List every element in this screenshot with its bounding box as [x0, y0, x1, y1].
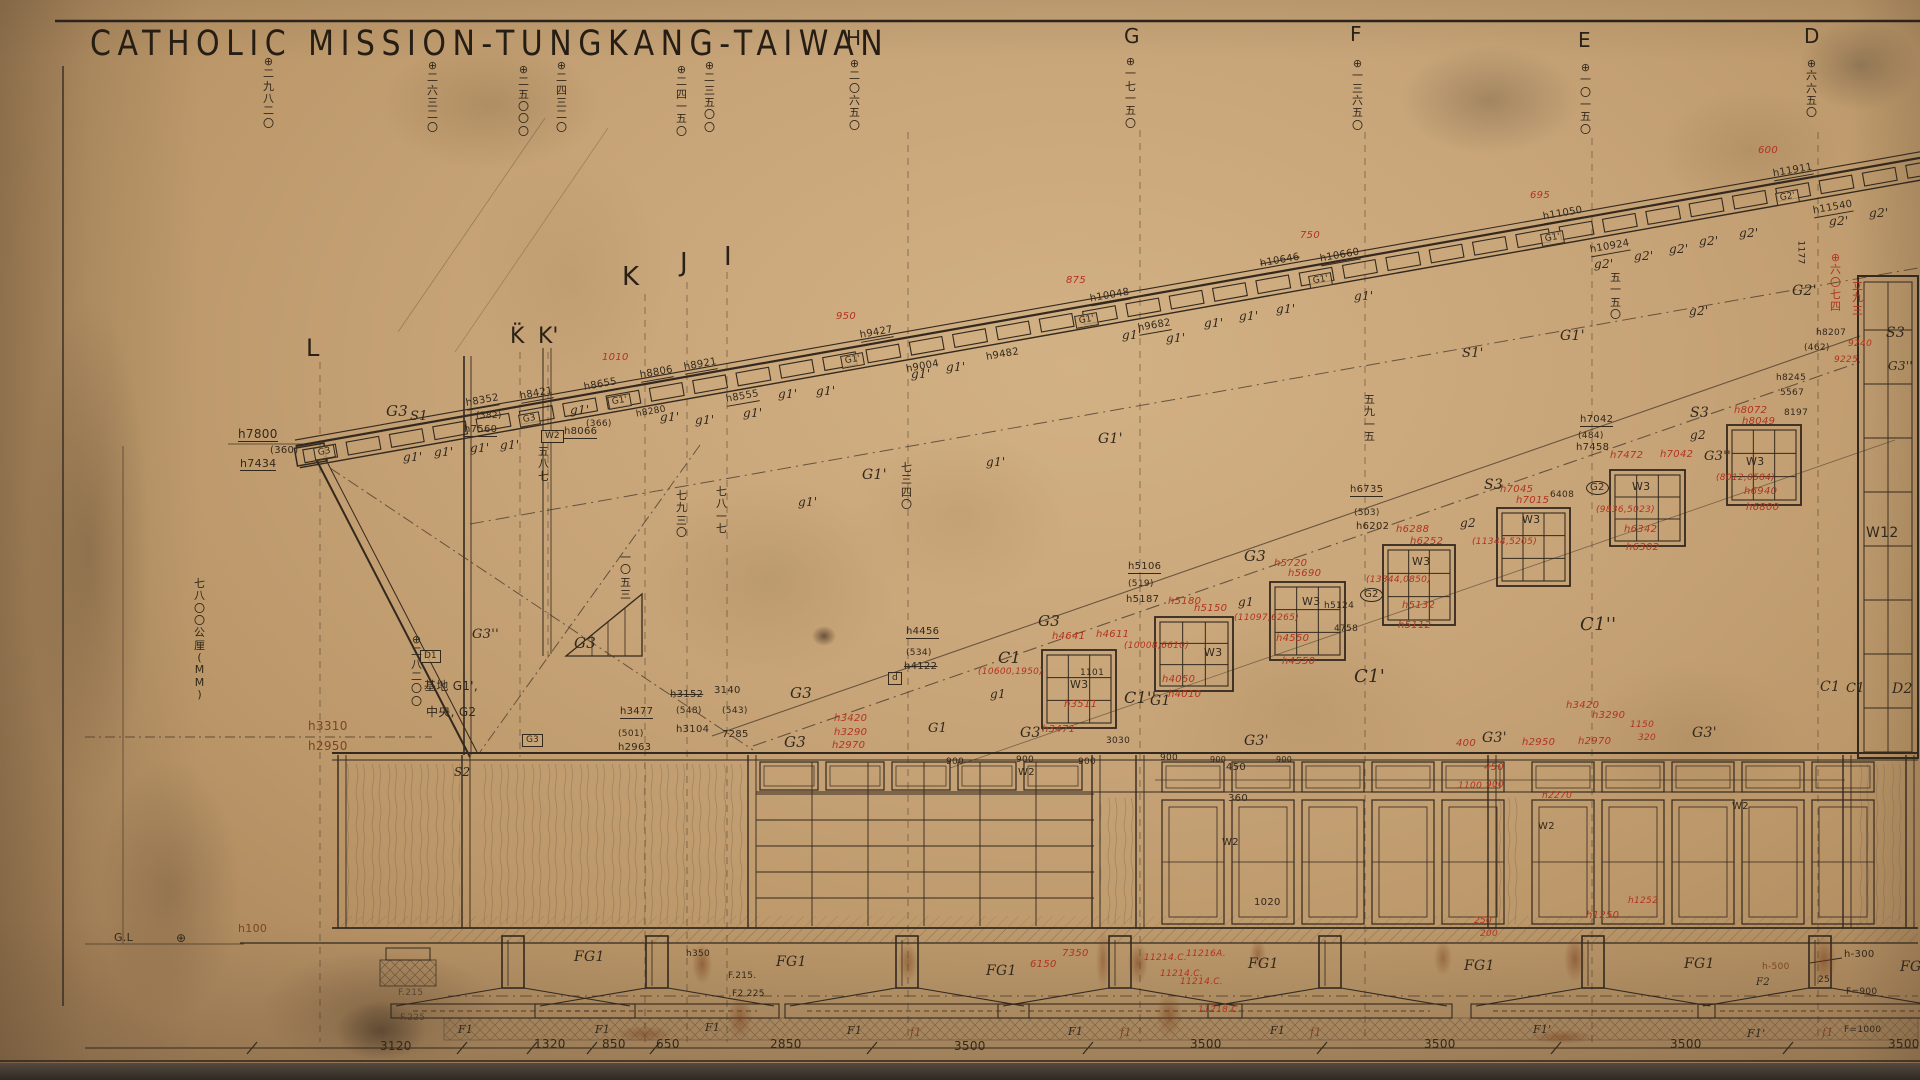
annotation: h8245: [1776, 374, 1806, 383]
annotation: 900: [1016, 756, 1034, 765]
boxed-label: G1': [607, 393, 632, 410]
annotation: C1'': [1580, 616, 1616, 634]
annotation: h5150: [1194, 604, 1227, 614]
annotation: D2: [1892, 682, 1913, 696]
annotation: h8555: [725, 389, 760, 407]
annotation: (548): [676, 707, 702, 716]
annotation: h8655: [583, 377, 618, 395]
annotation: F2 225: [732, 990, 765, 999]
annotation: F.225: [400, 1014, 425, 1023]
annotation: FG1: [776, 955, 807, 969]
annotation: h8352: [465, 393, 500, 411]
annotation: g2': [1699, 235, 1719, 247]
annotation: 3500: [1888, 1038, 1920, 1050]
annotation: 9225: [1834, 356, 1858, 365]
grid-letter: H: [846, 26, 861, 50]
annotation: (503): [1354, 509, 1380, 518]
annotation: F1: [595, 1024, 610, 1035]
annotation: 3500: [1424, 1038, 1456, 1050]
dimension-stack: ⊕二九八二〇: [263, 56, 274, 130]
annotation: G.L: [114, 932, 133, 943]
annotation: 750: [1300, 231, 1320, 241]
annotation: h3104: [676, 725, 709, 735]
annotation: 320: [1638, 734, 1656, 743]
boxed-label: W2: [541, 430, 564, 443]
annotation: 6408: [1550, 491, 1574, 500]
annotation: 3030: [1106, 737, 1130, 746]
dimension-stack: 七三四〇: [901, 462, 912, 511]
dimension-stack: 一〇五三: [620, 552, 631, 601]
annotation: h8049: [1742, 417, 1775, 427]
annotation: 1010: [602, 353, 629, 363]
annotation: g2': [1829, 215, 1849, 227]
annotation: (8012,0584): [1716, 474, 1775, 483]
boxed-label: G1': [1540, 230, 1565, 247]
annotation: h6252: [1410, 537, 1443, 547]
boxed-label: G3: [522, 734, 543, 747]
grid-letter: K': [538, 324, 558, 349]
boxed-label: G1': [1308, 272, 1333, 289]
annotation: 中央, G2: [426, 706, 476, 718]
annotation: h8066: [564, 427, 597, 439]
dimension-stack: 七九三〇: [676, 490, 687, 539]
annotation: f1: [1120, 1027, 1132, 1038]
annotation: F=1000: [1844, 1026, 1881, 1035]
annotation: h3152: [670, 690, 703, 700]
annotation: (11344,5205): [1472, 538, 1537, 547]
annotation: W3: [1302, 596, 1320, 607]
annotation: G2': [1792, 284, 1817, 298]
annotation: 基地 G1',: [424, 680, 478, 692]
annotation: g1': [403, 451, 423, 463]
grid-letter: J: [680, 248, 688, 278]
annotation: F=900: [1846, 988, 1877, 997]
annotation-layer: h8352h8421h8655h8806h8921h8555h9427h9004…: [0, 0, 1920, 1080]
annotation: 900: [1486, 781, 1504, 790]
annotation: W3: [1632, 481, 1650, 492]
annotation: h6940: [1744, 487, 1777, 497]
annotation: F1: [705, 1022, 720, 1033]
annotation: h10924: [1589, 239, 1630, 258]
annotation: g2': [1669, 243, 1689, 255]
grid-letter: K̈: [510, 324, 524, 349]
annotation: h7560: [464, 425, 497, 437]
annotation: h7472: [1610, 451, 1643, 461]
annotation: G1': [1560, 329, 1585, 343]
annotation: (519): [1128, 580, 1154, 589]
annotation: h5106: [1128, 562, 1161, 574]
annotation: F.215.: [728, 972, 756, 981]
annotation: F1': [1747, 1028, 1766, 1039]
annotation: G3: [784, 735, 806, 750]
annotation: G3: [386, 404, 408, 419]
grid-letter: G: [1124, 24, 1140, 48]
annotation: g1': [816, 385, 836, 397]
annotation: S3: [1690, 406, 1709, 420]
annotation: (10600,1950): [978, 668, 1043, 677]
annotation: 650: [656, 1038, 680, 1050]
annotation: W3: [1746, 456, 1764, 467]
annotation: h9427: [859, 325, 894, 343]
annotation: F1: [847, 1025, 862, 1036]
annotation: (534): [906, 649, 932, 658]
dimension-stack: 五一五〇: [1610, 272, 1621, 321]
annotation: h11050: [1542, 206, 1583, 225]
annotation: h4550: [1282, 657, 1315, 667]
dimension-stack: ⊕二四一五〇: [676, 64, 687, 138]
annotation: W2: [1018, 768, 1035, 778]
annotation: 1101: [1080, 669, 1104, 678]
annotation: g1': [1204, 317, 1224, 329]
annotation: h7045: [1500, 485, 1533, 495]
annotation: h3511: [1064, 700, 1097, 710]
annotation: G3: [790, 686, 812, 701]
annotation: 900: [1160, 754, 1178, 763]
annotation: g1': [660, 411, 680, 423]
annotation: g2': [1594, 258, 1614, 270]
annotation: g1: [1238, 596, 1254, 608]
annotation: C1: [1846, 682, 1865, 695]
annotation: h7042: [1580, 415, 1613, 427]
annotation: g1': [1276, 303, 1296, 315]
annotation: h3471: [1042, 725, 1075, 735]
annotation: FG1: [1248, 957, 1279, 971]
annotation: h8921: [683, 357, 718, 375]
dimension-stack: ⊕二六三二〇: [427, 60, 438, 134]
grid-letter: I: [724, 242, 732, 272]
annotation: C1': [1354, 668, 1385, 686]
annotation: FG1: [574, 950, 605, 964]
annotation: 1100: [1458, 782, 1482, 791]
annotation: h-300: [1844, 950, 1875, 960]
annotation: h7042: [1660, 450, 1693, 460]
annotation: g1': [743, 407, 763, 419]
annotation: (13344,0850): [1366, 576, 1431, 585]
annotation: 1320: [534, 1038, 566, 1050]
annotation: h1250: [1586, 911, 1619, 921]
annotation: h5690: [1288, 569, 1321, 579]
annotation: (484): [1578, 432, 1604, 441]
annotation: h3290: [834, 728, 867, 738]
annotation: F1': [1533, 1024, 1552, 1035]
annotation: G2: [1586, 481, 1609, 495]
dimension-stack: ⊕六〇七四: [1830, 252, 1841, 314]
annotation: G3'': [1888, 360, 1913, 372]
annotation: g1': [1122, 329, 1142, 341]
grid-letter: E: [1578, 28, 1591, 52]
grid-letter: K: [622, 262, 639, 292]
annotation: f1: [1310, 1027, 1322, 1038]
annotation: h4550: [1276, 634, 1309, 644]
annotation: h350: [686, 950, 710, 959]
annotation: h8072: [1734, 406, 1767, 416]
annotation: 875: [1066, 276, 1086, 286]
scan-table-edge: [0, 1063, 1920, 1080]
dimension-stack: ⊕六六五〇: [1806, 58, 1817, 120]
annotation: g2': [1689, 305, 1709, 317]
annotation: (382): [476, 412, 502, 421]
annotation: G2: [1360, 588, 1383, 602]
annotation: g1': [570, 404, 590, 416]
annotation: 900: [1078, 758, 1096, 767]
annotation: 2850: [770, 1038, 802, 1050]
annotation: W3: [1204, 647, 1222, 658]
annotation: 200: [1480, 930, 1498, 939]
annotation: 25: [1818, 976, 1830, 985]
annotation: FG1: [1464, 959, 1495, 973]
dimension-stack: ⊕二八二〇〇: [411, 634, 422, 708]
grid-letter: L: [306, 334, 319, 362]
annotation: f1: [1822, 1027, 1834, 1038]
annotation: 850: [602, 1038, 626, 1050]
annotation: h3477: [620, 707, 653, 719]
annotation: F2: [1756, 978, 1770, 988]
annotation: 1177: [1796, 240, 1805, 264]
annotation: (11097,6265): [1234, 614, 1299, 623]
annotation: F1: [458, 1024, 473, 1035]
annotation: (10008,6610): [1124, 642, 1189, 651]
annotation: h2970: [832, 741, 865, 751]
annotation: h11911: [1772, 163, 1813, 182]
annotation: G1: [928, 722, 947, 735]
annotation: g2: [1460, 517, 1476, 529]
boxed-label: G3: [313, 444, 336, 460]
annotation: 450: [1226, 763, 1246, 773]
annotation: g1': [695, 414, 715, 426]
annotation: (9836,5023): [1596, 506, 1655, 515]
annotation: h5132: [1402, 601, 1435, 611]
annotation: 1020: [1254, 898, 1281, 908]
annotation: ⊕: [176, 932, 186, 944]
annotation: G1': [1098, 432, 1123, 446]
annotation: h6735: [1350, 485, 1383, 497]
annotation: g2': [1739, 227, 1759, 239]
annotation: g1': [470, 442, 490, 454]
annotation: 11216A.: [1186, 950, 1226, 959]
annotation: 950: [836, 312, 856, 322]
annotation: h2270: [1542, 792, 1572, 801]
annotation: h4050: [1162, 675, 1195, 685]
annotation: 11214.C.: [1144, 954, 1187, 963]
annotation: h6302: [1626, 543, 1659, 553]
dimension-stack: ⊕一七一五〇: [1125, 56, 1136, 130]
annotation: g1': [434, 446, 454, 458]
annotation: g1: [990, 688, 1006, 700]
annotation: FG1: [986, 964, 1017, 978]
annotation: 250: [1474, 917, 1492, 926]
annotation: h100: [238, 923, 267, 934]
annotation: 900: [1276, 756, 1292, 764]
annotation: h1252: [1628, 897, 1658, 906]
annotation: h2970: [1578, 737, 1611, 747]
annotation: G3: [1038, 614, 1060, 629]
annotation: g1': [1354, 290, 1374, 302]
annotation: G3': [1482, 731, 1507, 745]
annotation: 900: [1210, 756, 1226, 764]
annotation: 5567: [1780, 389, 1804, 398]
annotation: h2950: [308, 740, 348, 752]
annotation: F.215: [398, 989, 423, 998]
grid-letter: D: [1804, 24, 1819, 48]
annotation: g2: [1690, 429, 1706, 441]
annotation: 4758: [1334, 625, 1358, 634]
annotation: f1: [910, 1027, 922, 1038]
annotation: h4010: [1168, 690, 1201, 700]
annotation: 7350: [1062, 949, 1089, 959]
annotation: FG1: [1900, 960, 1920, 974]
boxed-label: G1': [1074, 312, 1099, 329]
annotation: (462): [1804, 344, 1830, 353]
annotation: 3500: [1190, 1038, 1222, 1050]
annotation: W3: [1522, 514, 1540, 525]
annotation: W3: [1412, 556, 1430, 567]
boxed-label: D1: [420, 650, 441, 663]
annotation: g2': [1634, 250, 1654, 262]
boxed-label: G3: [518, 411, 541, 427]
annotation: g1': [1166, 332, 1186, 344]
annotation: h6288: [1396, 525, 1429, 535]
annotation: 7285: [722, 730, 749, 740]
annotation: G3': [1244, 734, 1269, 748]
annotation: g1': [778, 388, 798, 400]
annotation: (360): [270, 446, 298, 456]
annotation: g2': [1869, 207, 1889, 219]
boxed-label: d: [888, 672, 902, 685]
annotation: 360: [1228, 794, 1248, 804]
annotation: S1: [410, 410, 428, 423]
annotation: G3: [1244, 549, 1266, 564]
annotation: h8806: [639, 365, 674, 383]
annotation: 11218.C.: [1198, 1006, 1241, 1015]
annotation: 400: [1456, 739, 1476, 749]
annotation: 1150: [1630, 721, 1654, 730]
annotation: h10660: [1319, 248, 1360, 267]
annotation: h7434: [240, 458, 276, 471]
annotation: 695: [1530, 191, 1550, 201]
annotation: F1: [1270, 1025, 1285, 1036]
annotation: h5187: [1126, 595, 1159, 605]
dimension-stack: 七八一七: [716, 486, 727, 535]
annotation: 3500: [1670, 1038, 1702, 1050]
dimension-stack: ⊕一三六五〇: [1352, 58, 1363, 132]
annotation: 900: [946, 758, 964, 767]
annotation: FG1: [1684, 957, 1715, 971]
annotation: g1': [1239, 310, 1259, 322]
boxed-label: G2': [1775, 189, 1800, 206]
annotation: W12: [1866, 526, 1899, 540]
annotation: (501): [618, 730, 644, 739]
annotation: 11214.C.: [1180, 978, 1223, 987]
annotation: h4456: [906, 627, 939, 639]
annotation: W2: [1732, 802, 1749, 812]
dimension-stack: 五九一五: [1364, 394, 1375, 443]
annotation: h3310: [308, 720, 348, 732]
dimension-stack: ⊕二三五〇〇: [704, 60, 715, 134]
dimension-stack: 七八〇〇公厘(MM): [194, 578, 205, 701]
annotation: h4122: [904, 662, 937, 672]
annotation: G3': [1692, 726, 1717, 740]
annotation: h7458: [1576, 443, 1609, 453]
annotation: G3'': [1704, 450, 1731, 463]
annotation: 600: [1758, 146, 1778, 156]
blueprint-scan: CATHOLIC MISSION-TUNGKANG-TAIWAN h8352h8…: [0, 0, 1920, 1080]
annotation: W2: [1222, 838, 1239, 848]
annotation: 3140: [714, 686, 741, 696]
annotation: G3'': [472, 628, 499, 641]
annotation: h4641: [1052, 632, 1085, 642]
annotation: C1: [1820, 680, 1840, 694]
annotation: F1: [1068, 1026, 1083, 1037]
annotation: h5124: [1324, 602, 1354, 611]
annotation: h3290: [1592, 711, 1625, 721]
dimension-stack: ⊕二〇六五〇: [849, 58, 860, 132]
annotation: h2950: [1522, 738, 1555, 748]
dimension-stack: ⊕二四三二〇: [556, 60, 567, 134]
dimension-stack: 五八七: [538, 446, 549, 483]
annotation: S2: [454, 766, 470, 778]
annotation: G3: [574, 636, 596, 651]
annotation: 9240: [1848, 340, 1872, 349]
annotation: S1': [1462, 347, 1484, 360]
annotation: W2: [1538, 822, 1555, 832]
boxed-label: G1': [840, 352, 865, 369]
annotation: h6800: [1746, 503, 1779, 513]
annotation: C1: [998, 650, 1021, 666]
annotation: h7015: [1516, 496, 1549, 506]
annotation: h8421: [519, 386, 554, 404]
annotation: 8197: [1784, 409, 1808, 418]
annotation: h-500: [1762, 963, 1790, 972]
annotation: (543): [722, 707, 748, 716]
dimension-stack: ⊕一〇一五〇: [1580, 62, 1591, 136]
annotation: g1': [500, 439, 520, 451]
annotation: g1': [986, 456, 1006, 468]
annotation: h8207: [1816, 329, 1846, 338]
annotation: g1': [798, 496, 818, 508]
annotation: h5112: [1398, 621, 1431, 631]
annotation: h7800: [238, 428, 278, 442]
annotation: 6150: [1030, 960, 1057, 970]
grid-letter: F: [1350, 22, 1362, 46]
annotation: h4611: [1096, 630, 1129, 640]
annotation: S3: [1886, 326, 1905, 340]
annotation: g1': [946, 361, 966, 373]
dimension-stack: ⊕二五〇〇〇: [518, 64, 529, 138]
annotation: 3500: [954, 1040, 986, 1052]
annotation: h10646: [1259, 253, 1300, 270]
annotation: W3: [1070, 679, 1088, 690]
annotation: h10048: [1089, 288, 1130, 307]
annotation: 3120: [380, 1040, 412, 1052]
annotation: h6202: [1356, 522, 1389, 532]
annotation: 450: [1484, 763, 1504, 773]
annotation: h2963: [618, 743, 651, 753]
annotation: G1': [862, 468, 887, 482]
annotation: g1': [911, 368, 931, 380]
annotation: h9482: [985, 347, 1020, 363]
annotation: h3420: [834, 714, 867, 724]
dimension-stack: 立九三: [1852, 280, 1863, 317]
annotation: h6342: [1624, 525, 1657, 535]
